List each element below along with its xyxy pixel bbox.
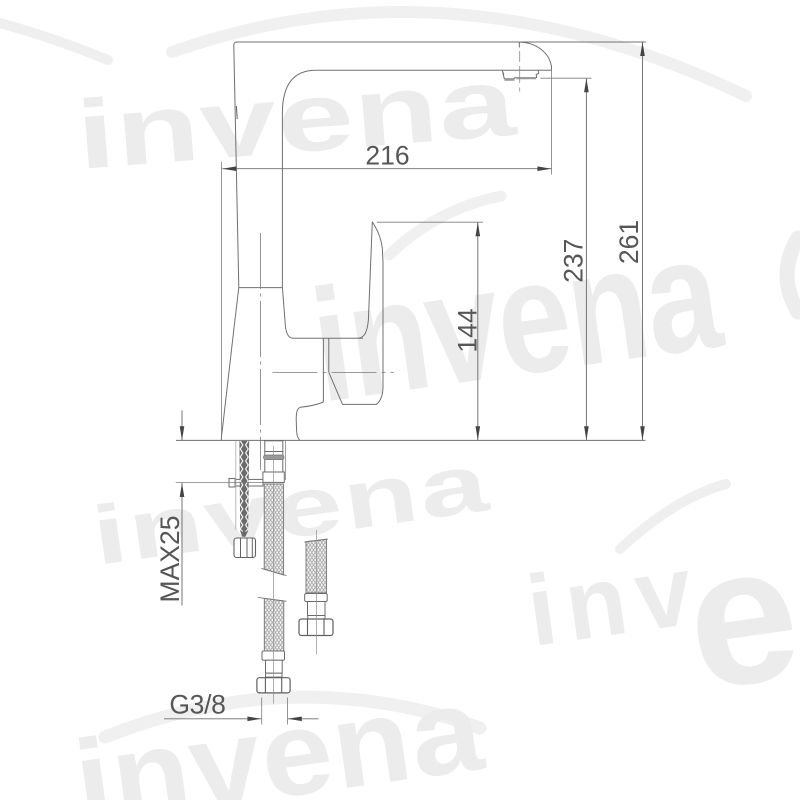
- svg-text:MAX25: MAX25: [155, 516, 185, 603]
- svg-text:237: 237: [559, 239, 589, 283]
- svg-text:216: 216: [365, 141, 409, 171]
- svg-text:144: 144: [452, 308, 482, 352]
- svg-text:G3/8: G3/8: [169, 690, 225, 720]
- svg-text:261: 261: [614, 220, 644, 264]
